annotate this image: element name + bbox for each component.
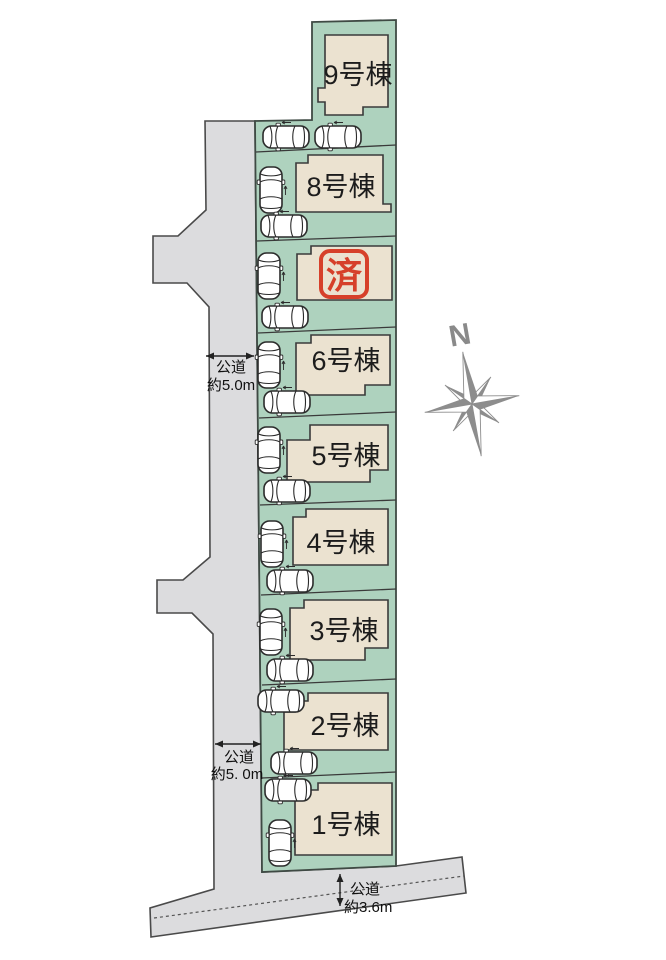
car-icon bbox=[271, 747, 317, 777]
lot-label-3: 3号棟 bbox=[309, 616, 378, 646]
lot-label-4: 4号棟 bbox=[306, 528, 375, 558]
road-label-3-line2: 約3.6m bbox=[344, 899, 392, 916]
road-label-2-line1: 公道 bbox=[224, 749, 254, 766]
car-icon bbox=[267, 654, 313, 684]
car-icon bbox=[255, 427, 285, 473]
car-icon bbox=[255, 253, 285, 299]
car-icon bbox=[257, 609, 287, 655]
road-label-1-line2: 約5.0m bbox=[207, 377, 255, 394]
road-label-1-line1: 公道 bbox=[216, 359, 246, 376]
lot-1: 1号棟 bbox=[265, 774, 392, 866]
car-icon bbox=[265, 774, 311, 804]
lot-label-2: 2号棟 bbox=[310, 711, 379, 741]
road-label-3-line1: 公道 bbox=[350, 881, 380, 898]
car-icon bbox=[258, 685, 304, 715]
sold-stamp: 済 bbox=[326, 255, 362, 296]
car-icon bbox=[264, 475, 310, 505]
car-icon bbox=[262, 301, 308, 331]
lot-label-8: 8号棟 bbox=[306, 172, 375, 202]
car-icon bbox=[264, 386, 310, 416]
site-plan: 9号棟 8号棟 済 6号棟 5号棟 4号棟 bbox=[0, 0, 666, 960]
car-icon bbox=[266, 820, 296, 866]
lot-label-9: 9号棟 bbox=[323, 60, 392, 90]
road-label-2-line2: 約5. 0m bbox=[211, 766, 264, 783]
car-icon bbox=[257, 167, 287, 213]
car-icon bbox=[267, 565, 313, 595]
car-icon bbox=[261, 210, 307, 240]
car-icon bbox=[263, 121, 309, 151]
lot-label-1: 1号棟 bbox=[311, 810, 380, 840]
car-icon bbox=[315, 121, 361, 151]
lot-label-6: 6号棟 bbox=[311, 346, 380, 376]
lot-label-5: 5号棟 bbox=[311, 441, 380, 471]
car-icon bbox=[255, 342, 285, 388]
car-icon bbox=[258, 521, 288, 567]
